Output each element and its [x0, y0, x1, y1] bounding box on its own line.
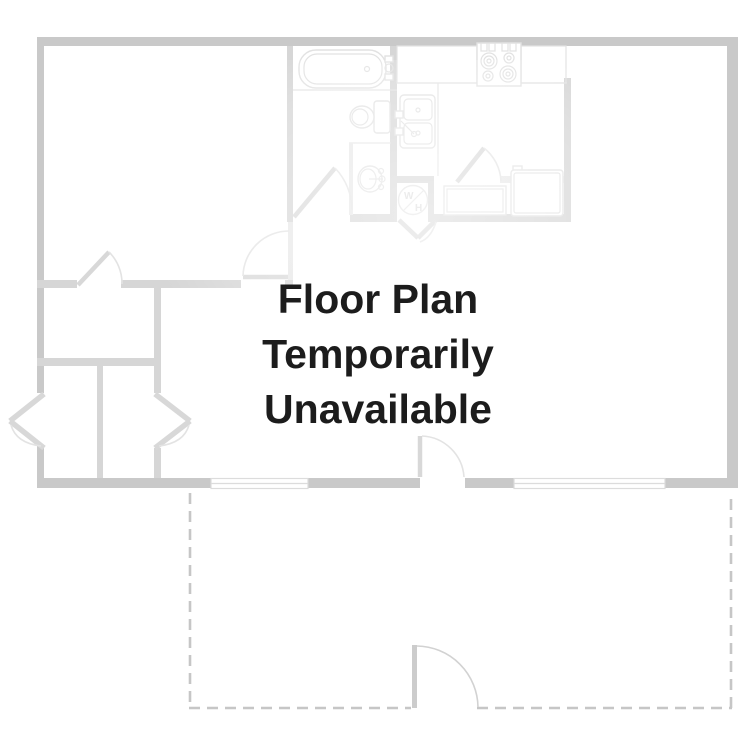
unavailable-message: Floor Plan Temporarily Unavailable [3, 272, 750, 437]
unavailable-message-line3: Unavailable [3, 382, 750, 437]
floor-plan-placeholder: W H [0, 0, 750, 750]
patio-dashed-outline [189, 493, 732, 708]
unavailable-message-line1: Floor Plan [3, 272, 750, 327]
door-swing [412, 645, 478, 708]
unavailable-message-line2: Temporarily [3, 327, 750, 382]
